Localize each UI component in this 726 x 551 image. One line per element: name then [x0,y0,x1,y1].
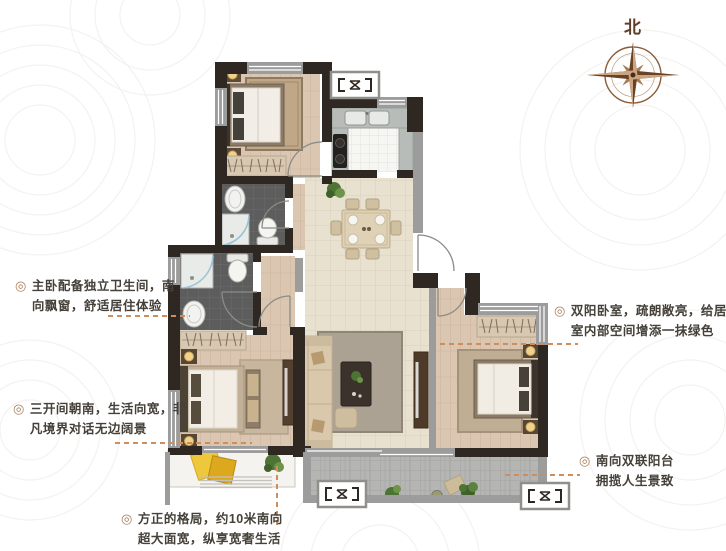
annotation-dual-aspect-bedroom: ◎ 双阳卧室，疏朗敞亮，给居 室内部空间增添一抹绿色 [554,301,726,341]
annotation-master-bath: ◎ 主卧配备独立卫生间，南 向飘窗，舒适居住体验 [15,276,175,316]
bench-icon [246,370,260,428]
kitchen-counter [399,128,413,177]
floorplan-page: 北 ◎ 主卧配备独立卫生间，南 向飘窗，舒适居住体验 ◎ 三开间朝南，生活向宽，… [0,0,726,551]
dining-table-icon [342,210,390,248]
chair-icon [391,221,401,235]
chair-icon [366,199,379,209]
annotation-square-layout: ◎ 方正的格局，约10米南向 超大面宽，纵享宽奢生活 [121,509,283,549]
window-symbol-icon [318,481,366,507]
chair-icon [331,221,341,235]
toilet-icon [227,254,248,282]
chair-icon [346,249,359,259]
lamp-icon [185,352,194,361]
tv-cabinet-icon [414,352,428,428]
annotation-text: 方正的格局，约10米南向 超大面宽，纵享宽奢生活 [138,509,283,549]
annotation-three-bays: ◎ 三开间朝南，生活向宽，非 凡境界对话无边阔景 [13,399,186,439]
shower-icon [181,254,213,288]
stove-icon [333,134,347,168]
ottoman-icon [335,408,357,428]
bed-icon [180,366,244,432]
chair-icon [346,199,359,209]
wardrobe-icon [180,331,246,350]
window-symbol-icon [521,483,569,509]
annotation-text: 三开间朝南，生活向宽，非 凡境界对话无边阔景 [30,399,186,439]
coffee-table-icon [341,362,371,406]
shower-icon [222,214,249,245]
lamp-icon [526,347,535,356]
door-arc [418,235,454,271]
annotation-south-balcony: ◎ 南向双联阳台 拥揽人生景致 [579,451,674,491]
toilet-icon [257,218,278,245]
lamp-icon [526,423,535,432]
annotation-bullet-icon: ◎ [121,509,133,549]
annotation-bullet-icon: ◎ [579,451,591,491]
annotation-bullet-icon: ◎ [15,276,27,316]
chair-icon [366,249,379,259]
sofa-icon [302,336,332,450]
annotation-text: 双阳卧室，疏朗敞亮，给居 室内部空间增添一抹绿色 [571,301,726,341]
annotation-bullet-icon: ◎ [13,399,25,439]
compass-north-label: 北 [606,13,660,38]
annotation-text: 南向双联阳台 拥揽人生景致 [596,451,674,491]
wardrobe-icon [222,156,286,176]
annotation-text: 主卧配备独立卫生间，南 向飘窗，舒适居住体验 [32,276,175,316]
compass-rose-icon [587,42,679,108]
wardrobe-icon [477,316,537,337]
bed-icon [474,360,538,418]
annotation-bullet-icon: ◎ [554,301,566,341]
window-symbol-icon [331,72,379,98]
